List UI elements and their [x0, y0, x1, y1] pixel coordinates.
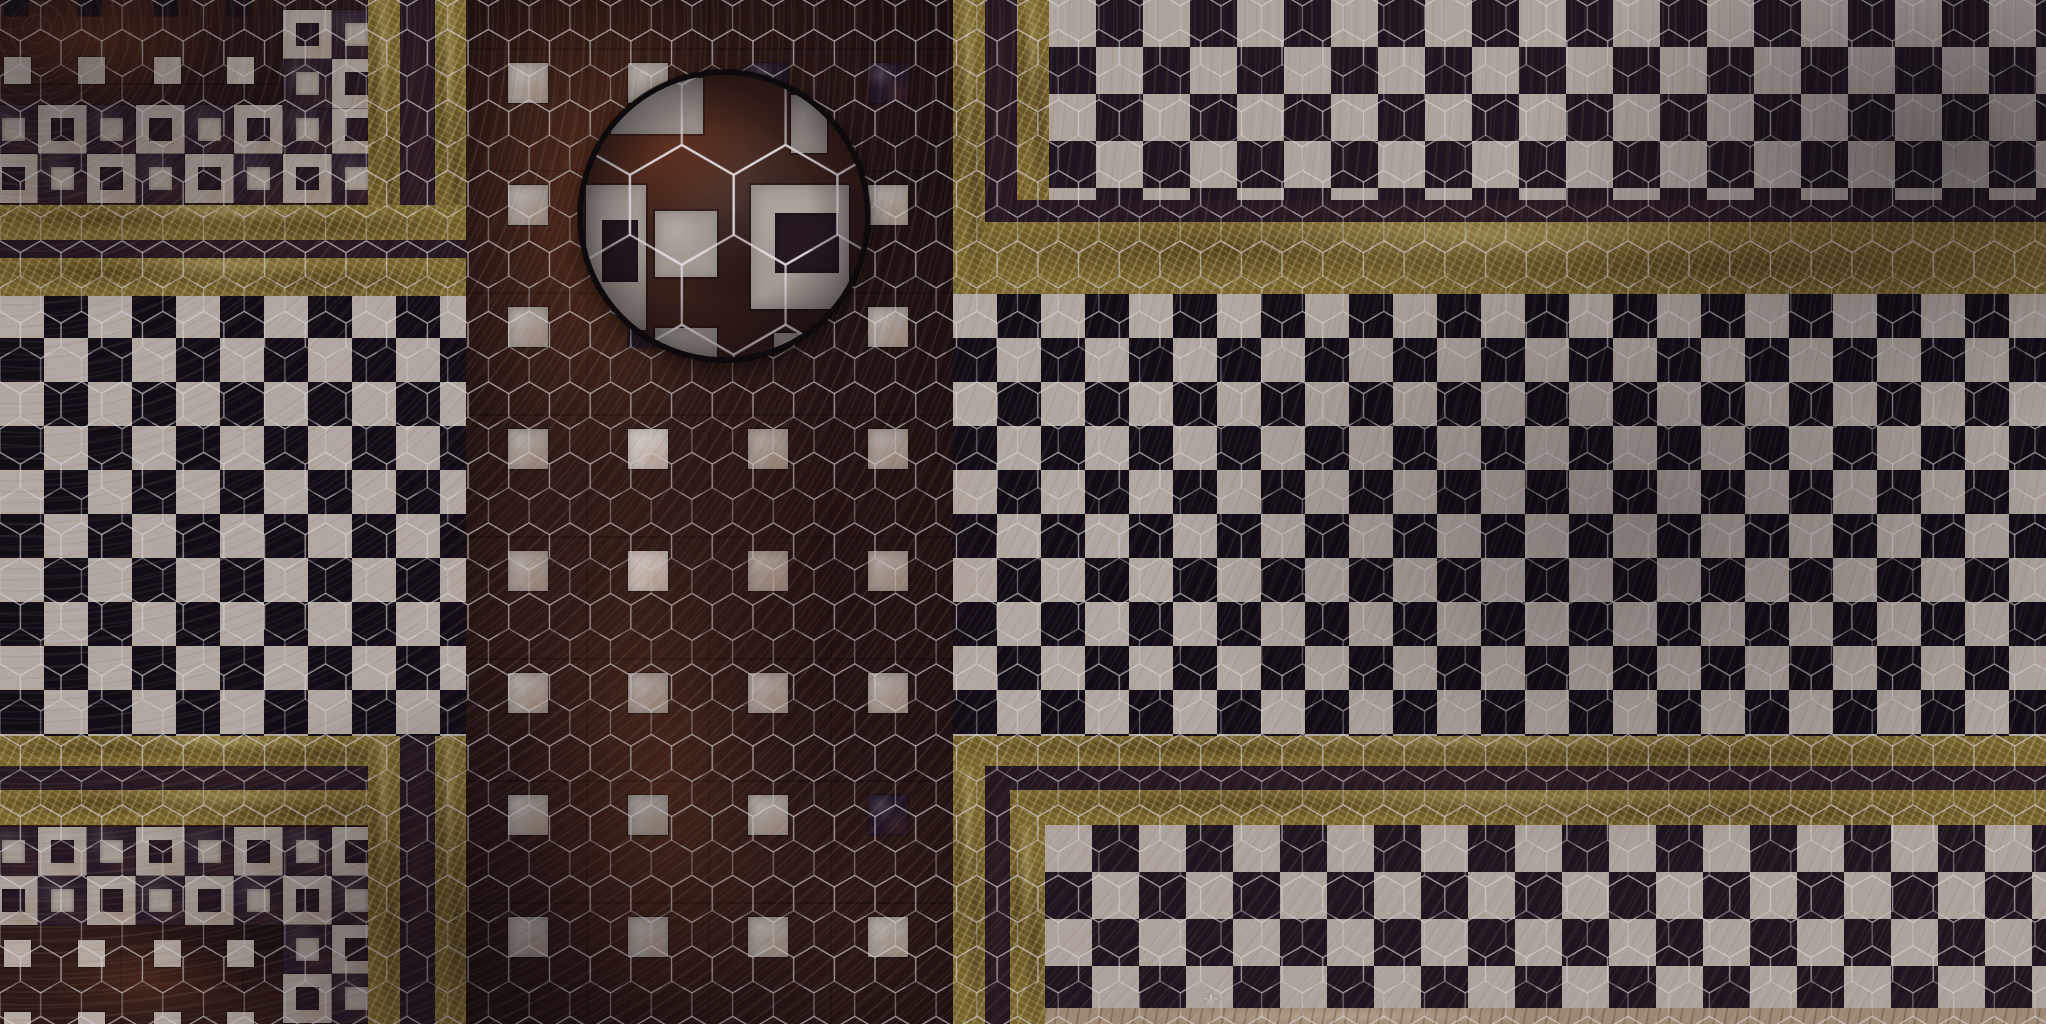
zoom-inset-circle	[578, 70, 870, 362]
zoom-inset-vignette	[583, 75, 865, 357]
maker-watermark-icon: ⚜	[1198, 988, 1224, 1014]
floor-texture-battlemap: ⚜	[0, 0, 2046, 1024]
hex-grid-overlay	[0, 0, 2046, 1024]
